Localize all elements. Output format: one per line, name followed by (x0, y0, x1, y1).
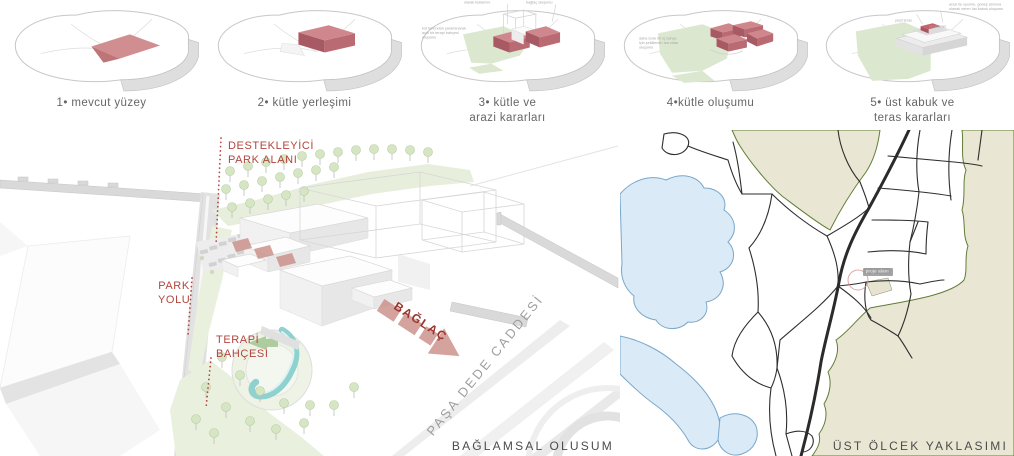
step-caption: 5• üst kabuk ve teras kararları (811, 96, 1014, 126)
park-road-label-line1: PARK (158, 280, 190, 294)
step3-note-left: kot farkından yararlanarak açık bir tera… (422, 26, 468, 40)
process-step-3: olarak kullanımı bağlaç oluşumu kot fark… (406, 0, 609, 130)
map-lake-main (620, 176, 734, 329)
park-area-label: DESTEKLEYİCİ PARK ALANI (228, 140, 314, 167)
step5-note-right: arazi ile uyumlu, güneş alımına olanak v… (949, 2, 1004, 11)
process-step-1: 1• mevcut yüzey (0, 0, 203, 130)
contextual-diagram-panel: DESTEKLEYİCİ PARK ALANI PARK YOLU TERAPİ… (0, 130, 620, 456)
step4-note: daha izole bir iç bahçe için şekillenen … (639, 36, 681, 50)
therapy-label-line1: TERAPİ (216, 334, 269, 348)
park-area-label-line1: DESTEKLEYİCİ (228, 140, 314, 154)
process-step-2: 2• kütle yerleşimi (203, 0, 406, 130)
step3-caption-line2: arazi kararları (406, 111, 609, 126)
step3-diagram (406, 2, 609, 95)
terrain-facet (0, 222, 28, 256)
step5-terrace-label-1: yeşil teras (895, 18, 954, 23)
site-axonometric (0, 130, 620, 456)
step2-caption: 2• kütle yerleşimi (203, 96, 406, 111)
park-road-label: PARK YOLU (158, 280, 190, 307)
map-panel-caption: ÜST ÖLCEK YAKLASIMI (833, 439, 1008, 453)
contextual-panel-caption: BAĞLAMSAL OLUSUM (452, 439, 614, 453)
step1-diagram (0, 2, 203, 95)
city-map (620, 130, 1014, 456)
park-area-label-line2: PARK ALANI (228, 154, 314, 168)
step5-diagram (811, 2, 1014, 95)
step-caption: 4•kütle oluşumu (609, 96, 812, 111)
step2-diagram (203, 2, 406, 95)
step1-caption: 1• mevcut yüzey (0, 96, 203, 111)
building-cluster (222, 204, 430, 350)
step-caption: 1• mevcut yüzey (0, 96, 203, 111)
step5-terrace-label-2: yeşil teras (929, 24, 988, 29)
map-lake-small (718, 414, 757, 455)
step3-caption-line1: 3• kütle ve (406, 96, 609, 111)
step-caption: 3• kütle ve arazi kararları (406, 96, 609, 126)
presentation-board: 1• mevcut yüzey 2• kütle yerleşimi (0, 0, 1014, 456)
step5-caption-line1: 5• üst kabuk ve (811, 96, 1014, 111)
step3-note-top-right: bağlaç oluşumu (526, 0, 585, 5)
park-road-label-line2: YOLU (158, 294, 190, 308)
therapy-garden-label: TERAPİ BAHÇESİ (216, 334, 269, 361)
step5-caption-line2: teras kararları (811, 111, 1014, 126)
therapy-label-line2: BAHÇESİ (216, 348, 269, 362)
site-marker-label: proje alanı (864, 268, 890, 274)
map-channel (620, 336, 720, 449)
step3-note-top-left: olarak kullanımı (464, 0, 523, 5)
retaining-wall-north (0, 177, 206, 202)
property-line (470, 146, 618, 186)
process-step-4: daha izole bir iç bahçe için şekillenen … (609, 0, 812, 130)
process-step-5: yeşil teras yeşil teras arazi ile uyumlu… (811, 0, 1014, 130)
map-panel: proje alanı ÜST ÖLCEK YAKLASIMI (620, 130, 1014, 456)
step4-caption: 4•kütle oluşumu (609, 96, 812, 111)
step-caption: 2• kütle yerleşimi (203, 96, 406, 111)
